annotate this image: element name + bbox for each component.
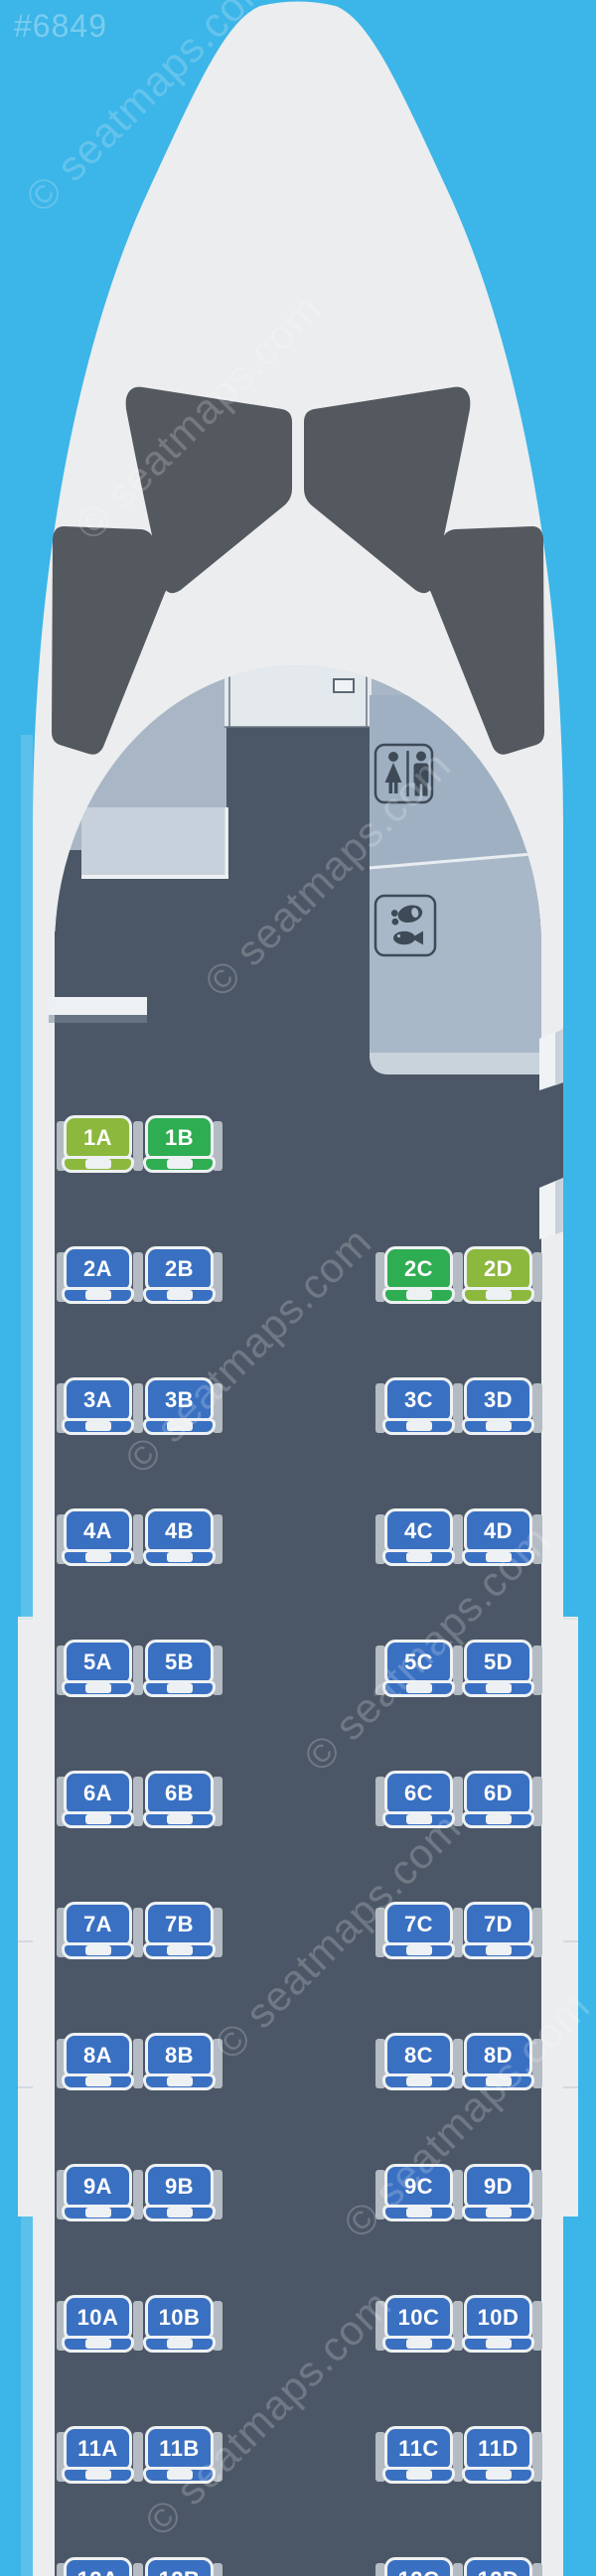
seat-cushion-notch — [486, 1683, 512, 1693]
seat-cushion — [62, 1156, 134, 1173]
seat-3B[interactable]: 3B — [145, 1377, 214, 1435]
seat-1B[interactable]: 1B — [145, 1115, 214, 1173]
seat-cushion-notch — [85, 1814, 111, 1824]
seat-label: 10C — [398, 2305, 440, 2331]
seat-6D[interactable]: 6D — [464, 1771, 532, 1828]
seat-4A[interactable]: 4A — [64, 1508, 132, 1566]
seat-3C[interactable]: 3C — [384, 1377, 453, 1435]
seat-back: 7D — [464, 1902, 532, 1946]
seat-cushion — [143, 1156, 216, 1173]
seat-cushion — [462, 2336, 534, 2353]
armrest — [133, 1252, 143, 1302]
seat-label: 6A — [83, 1781, 112, 1806]
seat-label: 7A — [83, 1912, 112, 1937]
seat-11D[interactable]: 11D — [464, 2426, 532, 2484]
seat-9A[interactable]: 9A — [64, 2164, 132, 2221]
seat-back: 6B — [145, 1771, 214, 1815]
seat-11B[interactable]: 11B — [145, 2426, 214, 2484]
seat-back: 12D — [464, 2557, 532, 2576]
seat-back: 4C — [384, 1508, 453, 1553]
seat-back: 11C — [384, 2426, 453, 2471]
seat-back: 10A — [64, 2295, 132, 2340]
seat-5C[interactable]: 5C — [384, 1640, 453, 1697]
seatmap-page: #6849 © seatmaps.com© seatmaps.com© seat… — [0, 0, 596, 2576]
seat-back: 3D — [464, 1377, 532, 1422]
armrest — [133, 1908, 143, 1957]
seat-back: 2D — [464, 1246, 532, 1291]
seat-6C[interactable]: 6C — [384, 1771, 453, 1828]
seat-label: 10D — [478, 2305, 520, 2331]
seat-cushion-notch — [167, 1159, 193, 1169]
seat-label: 3A — [83, 1387, 112, 1413]
seat-cushion-notch — [167, 1814, 193, 1824]
seat-cushion-notch — [167, 2470, 193, 2480]
seat-9C[interactable]: 9C — [384, 2164, 453, 2221]
seat-cushion — [62, 1418, 134, 1435]
seat-2B[interactable]: 2B — [145, 1246, 214, 1304]
seat-cushion-notch — [486, 1552, 512, 1562]
seat-cushion-notch — [406, 1814, 432, 1824]
seat-cushion — [382, 2467, 455, 2484]
seat-label: 9B — [165, 2174, 194, 2200]
seat-cushion — [62, 2467, 134, 2484]
seat-cushion-notch — [486, 2076, 512, 2086]
seat-11C[interactable]: 11C — [384, 2426, 453, 2484]
seat-7A[interactable]: 7A — [64, 1902, 132, 1959]
seat-cushion — [382, 2205, 455, 2221]
seat-cushion-notch — [406, 2339, 432, 2349]
seat-back: 5B — [145, 1640, 214, 1684]
seat-back: 9C — [384, 2164, 453, 2209]
seat-cushion-notch — [85, 1290, 111, 1300]
armrest — [133, 1646, 143, 1695]
seat-back: 6A — [64, 1771, 132, 1815]
seat-cushion-notch — [406, 1683, 432, 1693]
seat-label: 11A — [77, 2436, 118, 2462]
seat-cushion — [382, 1549, 455, 1566]
seat-cushion — [143, 1942, 216, 1959]
seat-cushion-notch — [406, 1945, 432, 1955]
armrest — [213, 2563, 223, 2576]
seat-cushion — [382, 1942, 455, 1959]
seat-label: 5C — [404, 1649, 433, 1675]
seat-cushion — [382, 1418, 455, 1435]
seat-8D[interactable]: 8D — [464, 2033, 532, 2090]
seat-12C[interactable]: 12C — [384, 2557, 453, 2576]
seat-back: 3A — [64, 1377, 132, 1422]
seat-cushion — [62, 1287, 134, 1304]
seat-back: 3C — [384, 1377, 453, 1422]
seat-cushion-notch — [406, 2208, 432, 2218]
seat-cushion-notch — [406, 1552, 432, 1562]
seat-back: 9D — [464, 2164, 532, 2209]
seat-back: 1A — [64, 1115, 132, 1160]
seat-back: 12A — [64, 2557, 132, 2576]
seat-back: 4D — [464, 1508, 532, 1553]
seat-cushion — [382, 1811, 455, 1828]
seat-back: 9B — [145, 2164, 214, 2209]
seat-back: 9A — [64, 2164, 132, 2209]
seat-1A[interactable]: 1A — [64, 1115, 132, 1173]
seat-8B[interactable]: 8B — [145, 2033, 214, 2090]
seat-cushion — [462, 2205, 534, 2221]
seat-back: 10D — [464, 2295, 532, 2340]
seat-back: 3B — [145, 1377, 214, 1422]
map-id-label: #6849 — [14, 8, 107, 45]
seat-cushion-notch — [85, 1683, 111, 1693]
seat-cushion — [382, 1287, 455, 1304]
seat-label: 4A — [83, 1518, 112, 1544]
seat-12D[interactable]: 12D — [464, 2557, 532, 2576]
seat-back: 8C — [384, 2033, 453, 2077]
seat-back: 4B — [145, 1508, 214, 1553]
seat-label: 8C — [404, 2043, 433, 2069]
seat-cushion-notch — [167, 2076, 193, 2086]
seat-label: 1B — [165, 1125, 194, 1151]
seat-12A[interactable]: 12A — [64, 2557, 132, 2576]
seat-label: 11D — [478, 2436, 519, 2462]
seat-6A[interactable]: 6A — [64, 1771, 132, 1828]
seat-cushion-notch — [167, 1421, 193, 1431]
seat-label: 2B — [165, 1256, 194, 1282]
seat-cushion — [143, 2467, 216, 2484]
seat-label: 9C — [404, 2174, 433, 2200]
seat-cushion-notch — [486, 1290, 512, 1300]
seat-label: 11B — [159, 2436, 200, 2462]
seat-label: 4D — [484, 1518, 513, 1544]
seat-cushion — [62, 1942, 134, 1959]
seat-12B[interactable]: 12B — [145, 2557, 214, 2576]
seat-8C[interactable]: 8C — [384, 2033, 453, 2090]
seat-label: 3D — [484, 1387, 513, 1413]
seat-cushion — [143, 1549, 216, 1566]
seat-cushion — [143, 1418, 216, 1435]
armrest — [133, 1514, 143, 1564]
seat-label: 4B — [165, 1518, 194, 1544]
seat-cushion-notch — [85, 2076, 111, 2086]
seat-back: 8D — [464, 2033, 532, 2077]
seat-cushion-notch — [85, 1552, 111, 1562]
seat-cushion-notch — [167, 2339, 193, 2349]
seat-label: 8B — [165, 2043, 194, 2069]
seat-10C[interactable]: 10C — [384, 2295, 453, 2353]
seat-label: 4C — [404, 1518, 433, 1544]
seat-cushion — [62, 2074, 134, 2090]
seat-cushion — [462, 1942, 534, 1959]
seat-8A[interactable]: 8A — [64, 2033, 132, 2090]
seat-back: 5D — [464, 1640, 532, 1684]
seat-cushion — [462, 2074, 534, 2090]
seat-label: 5B — [165, 1649, 194, 1675]
seat-cushion — [143, 2205, 216, 2221]
seat-cushion — [143, 2074, 216, 2090]
seat-4D[interactable]: 4D — [464, 1508, 532, 1566]
seat-label: 5D — [484, 1649, 513, 1675]
seat-label: 9A — [83, 2174, 112, 2200]
seat-7B[interactable]: 7B — [145, 1902, 214, 1959]
seat-back: 5C — [384, 1640, 453, 1684]
seat-9B[interactable]: 9B — [145, 2164, 214, 2221]
armrest — [133, 2039, 143, 2088]
seat-cushion-notch — [486, 1814, 512, 1824]
seat-6B[interactable]: 6B — [145, 1771, 214, 1828]
seat-cushion-notch — [85, 2339, 111, 2349]
armrest — [453, 2563, 463, 2576]
seat-label: 3C — [404, 1387, 433, 1413]
seat-label: 7B — [165, 1912, 194, 1937]
seat-cushion-notch — [85, 1945, 111, 1955]
seat-cushion — [462, 1680, 534, 1697]
seat-back: 8A — [64, 2033, 132, 2077]
seat-back: 11A — [64, 2426, 132, 2471]
seat-cushion — [62, 1680, 134, 1697]
armrest — [133, 1383, 143, 1433]
seat-cushion-notch — [486, 2208, 512, 2218]
seat-cushion-notch — [406, 1290, 432, 1300]
seat-back: 2A — [64, 1246, 132, 1291]
seat-label: 8A — [83, 2043, 112, 2069]
seat-label: 3B — [165, 1387, 194, 1413]
seat-4C[interactable]: 4C — [384, 1508, 453, 1566]
seat-label: 2A — [83, 1256, 112, 1282]
seat-label: 10B — [159, 2305, 201, 2331]
seat-cushion-notch — [85, 1159, 111, 1169]
seat-label: 8D — [484, 2043, 513, 2069]
seat-cushion-notch — [486, 1421, 512, 1431]
armrest — [133, 1121, 143, 1171]
seat-back: 2B — [145, 1246, 214, 1291]
seat-back: 6C — [384, 1771, 453, 1815]
seat-label: 10A — [77, 2305, 119, 2331]
seat-label: 11C — [398, 2436, 439, 2462]
seat-label: 7C — [404, 1912, 433, 1937]
seat-label: 9D — [484, 2174, 513, 2200]
seat-9D[interactable]: 9D — [464, 2164, 532, 2221]
armrest — [133, 1777, 143, 1826]
seat-cushion — [143, 1811, 216, 1828]
seat-2D[interactable]: 2D — [464, 1246, 532, 1304]
seat-4B[interactable]: 4B — [145, 1508, 214, 1566]
seat-back: 5A — [64, 1640, 132, 1684]
seat-cushion-notch — [167, 1290, 193, 1300]
seat-3D[interactable]: 3D — [464, 1377, 532, 1435]
seat-back: 7A — [64, 1902, 132, 1946]
seat-2A[interactable]: 2A — [64, 1246, 132, 1304]
seat-7D[interactable]: 7D — [464, 1902, 532, 1959]
seat-label: 2D — [484, 1256, 513, 1282]
seat-cushion — [462, 1418, 534, 1435]
seat-back: 2C — [384, 1246, 453, 1291]
seat-cushion-notch — [406, 2076, 432, 2086]
seat-7C[interactable]: 7C — [384, 1902, 453, 1959]
seat-2C[interactable]: 2C — [384, 1246, 453, 1304]
seat-back: 7C — [384, 1902, 453, 1946]
seat-cushion — [382, 2336, 455, 2353]
seats-layer: 1A1B2A2B2C2D3A3B3C3D4A4B4C4D5A5B5C5D6A6B… — [0, 0, 596, 2576]
seat-5D[interactable]: 5D — [464, 1640, 532, 1697]
seat-back: 11D — [464, 2426, 532, 2471]
seat-label: 7D — [484, 1912, 513, 1937]
seat-label: 12C — [398, 2567, 440, 2576]
armrest — [133, 2432, 143, 2482]
seat-11A[interactable]: 11A — [64, 2426, 132, 2484]
seat-cushion — [143, 2336, 216, 2353]
seat-cushion-notch — [406, 1421, 432, 1431]
seat-cushion-notch — [85, 2470, 111, 2480]
seat-cushion — [62, 2336, 134, 2353]
seat-cushion — [143, 1680, 216, 1697]
seat-label: 6B — [165, 1781, 194, 1806]
seat-back: 7B — [145, 1902, 214, 1946]
seat-back: 1B — [145, 1115, 214, 1160]
seat-label: 12D — [478, 2567, 520, 2576]
seat-10D[interactable]: 10D — [464, 2295, 532, 2353]
seat-label: 6C — [404, 1781, 433, 1806]
seat-cushion-notch — [167, 1683, 193, 1693]
seat-label: 2C — [404, 1256, 433, 1282]
seat-cushion — [143, 1287, 216, 1304]
seat-back: 10B — [145, 2295, 214, 2340]
armrest — [133, 2170, 143, 2219]
seat-cushion — [462, 1549, 534, 1566]
seat-cushion — [462, 1287, 534, 1304]
seat-label: 12B — [159, 2567, 201, 2576]
seat-cushion-notch — [167, 2208, 193, 2218]
armrest — [133, 2563, 143, 2576]
seat-back: 4A — [64, 1508, 132, 1553]
seat-cushion — [382, 2074, 455, 2090]
seat-cushion — [462, 1811, 534, 1828]
seat-back: 11B — [145, 2426, 214, 2471]
seat-cushion-notch — [486, 2470, 512, 2480]
seat-label: 1A — [83, 1125, 112, 1151]
seat-label: 5A — [83, 1649, 112, 1675]
seat-cushion-notch — [85, 1421, 111, 1431]
seat-cushion — [62, 2205, 134, 2221]
seat-label: 12A — [77, 2567, 119, 2576]
seat-cushion-notch — [486, 2339, 512, 2349]
seat-back: 8B — [145, 2033, 214, 2077]
seat-cushion-notch — [167, 1552, 193, 1562]
armrest — [532, 2563, 542, 2576]
seat-cushion-notch — [85, 2208, 111, 2218]
seat-cushion — [462, 2467, 534, 2484]
seat-5A[interactable]: 5A — [64, 1640, 132, 1697]
seat-back: 12B — [145, 2557, 214, 2576]
seat-5B[interactable]: 5B — [145, 1640, 214, 1697]
seat-10B[interactable]: 10B — [145, 2295, 214, 2353]
seat-cushion-notch — [167, 1945, 193, 1955]
seat-cushion-notch — [406, 2470, 432, 2480]
armrest — [133, 2301, 143, 2351]
seat-back: 10C — [384, 2295, 453, 2340]
seat-cushion — [382, 1680, 455, 1697]
seat-cushion — [62, 1549, 134, 1566]
seat-label: 6D — [484, 1781, 513, 1806]
seat-cushion — [62, 1811, 134, 1828]
seat-back: 12C — [384, 2557, 453, 2576]
seat-back: 6D — [464, 1771, 532, 1815]
seat-cushion-notch — [486, 1945, 512, 1955]
seat-3A[interactable]: 3A — [64, 1377, 132, 1435]
seat-10A[interactable]: 10A — [64, 2295, 132, 2353]
